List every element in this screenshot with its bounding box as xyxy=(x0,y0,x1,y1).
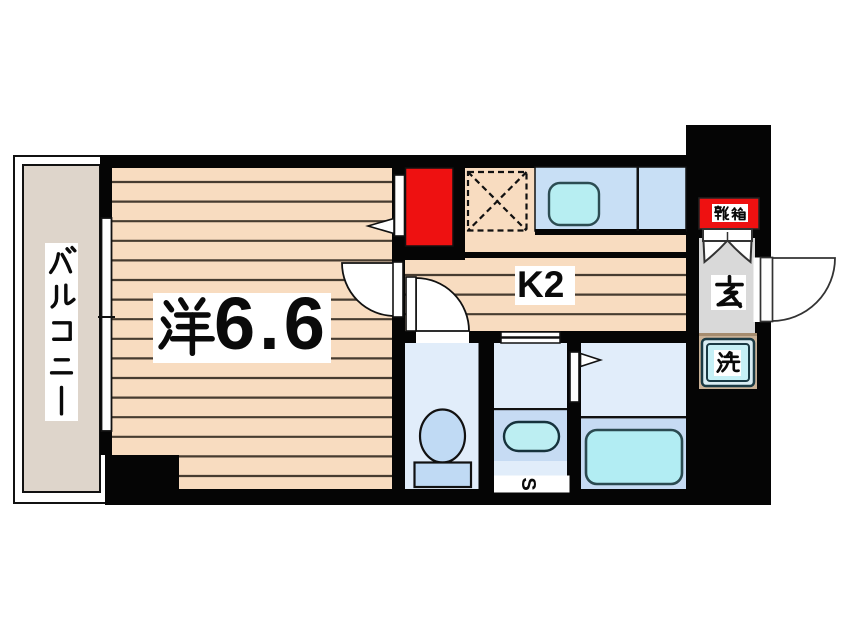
svg-text:K2: K2 xyxy=(517,264,564,305)
svg-text:S: S xyxy=(517,477,539,490)
svg-text:6.6: 6.6 xyxy=(214,282,329,365)
